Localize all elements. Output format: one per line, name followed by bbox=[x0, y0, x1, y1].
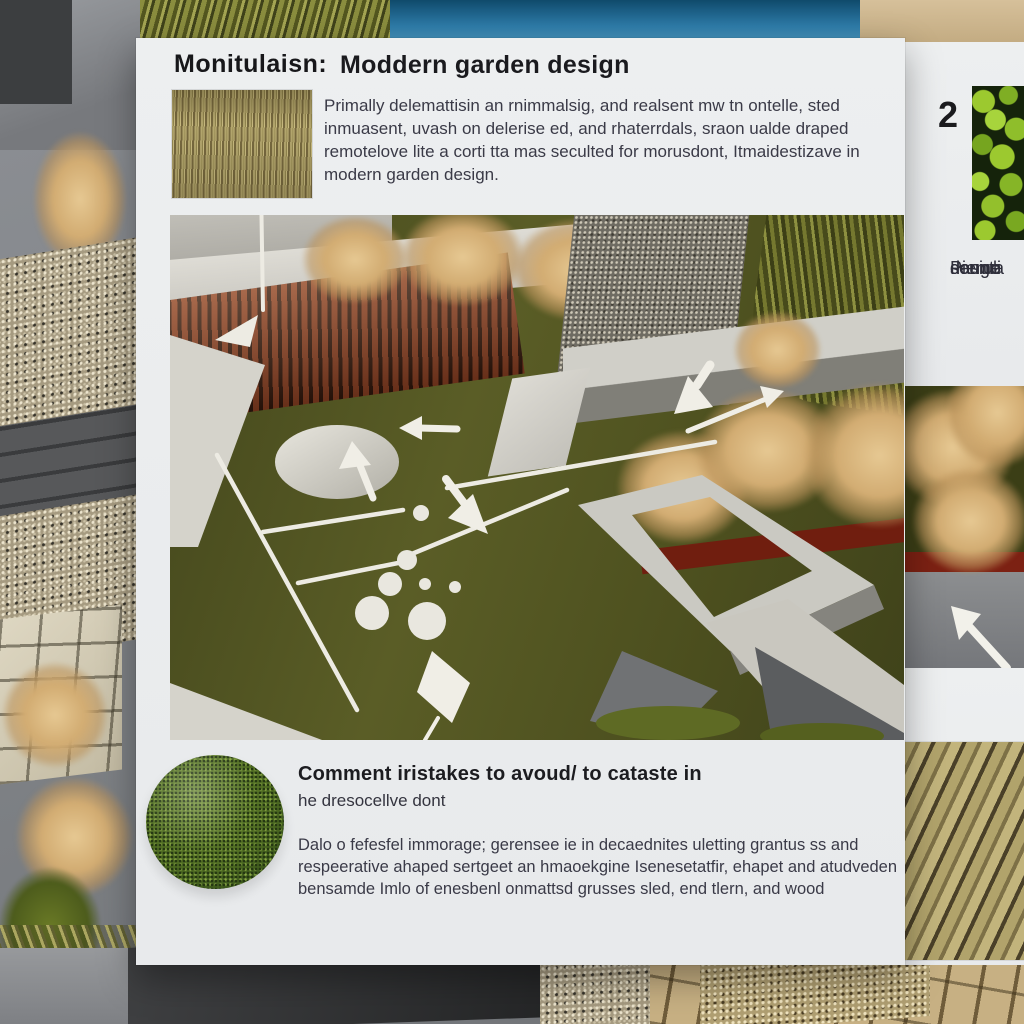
arrow-down-right-icon bbox=[446, 479, 488, 534]
mistakes-paragraph: Dalo o fefesfel immorage; gerensee ie in… bbox=[298, 834, 904, 900]
aggregate-band-left bbox=[0, 237, 140, 434]
garden-plan-render bbox=[170, 215, 904, 740]
plan-diagram-overlay bbox=[170, 215, 904, 740]
charcoal-block-left bbox=[0, 0, 72, 104]
garden-design-infographic: 2 Piemo seunta donge dasiuli Monitulaisn… bbox=[0, 0, 1024, 1024]
side-caption-line: dasiuli bbox=[950, 255, 1001, 282]
mistakes-heading: Comment iristakes to avoud/ to cataste i… bbox=[298, 763, 702, 786]
arrow-left-icon bbox=[399, 416, 457, 440]
poster-title: Moddern garden design bbox=[340, 51, 630, 80]
section-number: 2 bbox=[938, 94, 958, 136]
mistakes-subheading: he dresocellve dont bbox=[298, 791, 445, 811]
intro-paragraph: Primally delemattisin an rnimmalsig, and… bbox=[324, 94, 902, 186]
wood-decking-photo bbox=[905, 742, 1024, 960]
round-shrub-photo bbox=[146, 755, 284, 889]
diagram-dots bbox=[355, 505, 461, 640]
poster-label: Monitulaisn: bbox=[174, 50, 327, 79]
arrow-down-left-icon bbox=[674, 365, 713, 414]
dried-grass-swatch-photo bbox=[172, 90, 312, 198]
grass-plume bbox=[900, 446, 1024, 596]
arrow-left-down-icon bbox=[215, 315, 258, 347]
green-clover-photo bbox=[972, 86, 1024, 240]
poster-panel-main: Monitulaisn: Moddern garden design Prima… bbox=[136, 38, 905, 965]
arrow-up-left-icon bbox=[935, 598, 1024, 678]
stone-disc bbox=[275, 425, 399, 499]
concrete-walkways bbox=[170, 335, 904, 740]
arrow-kite-icon bbox=[417, 651, 470, 740]
